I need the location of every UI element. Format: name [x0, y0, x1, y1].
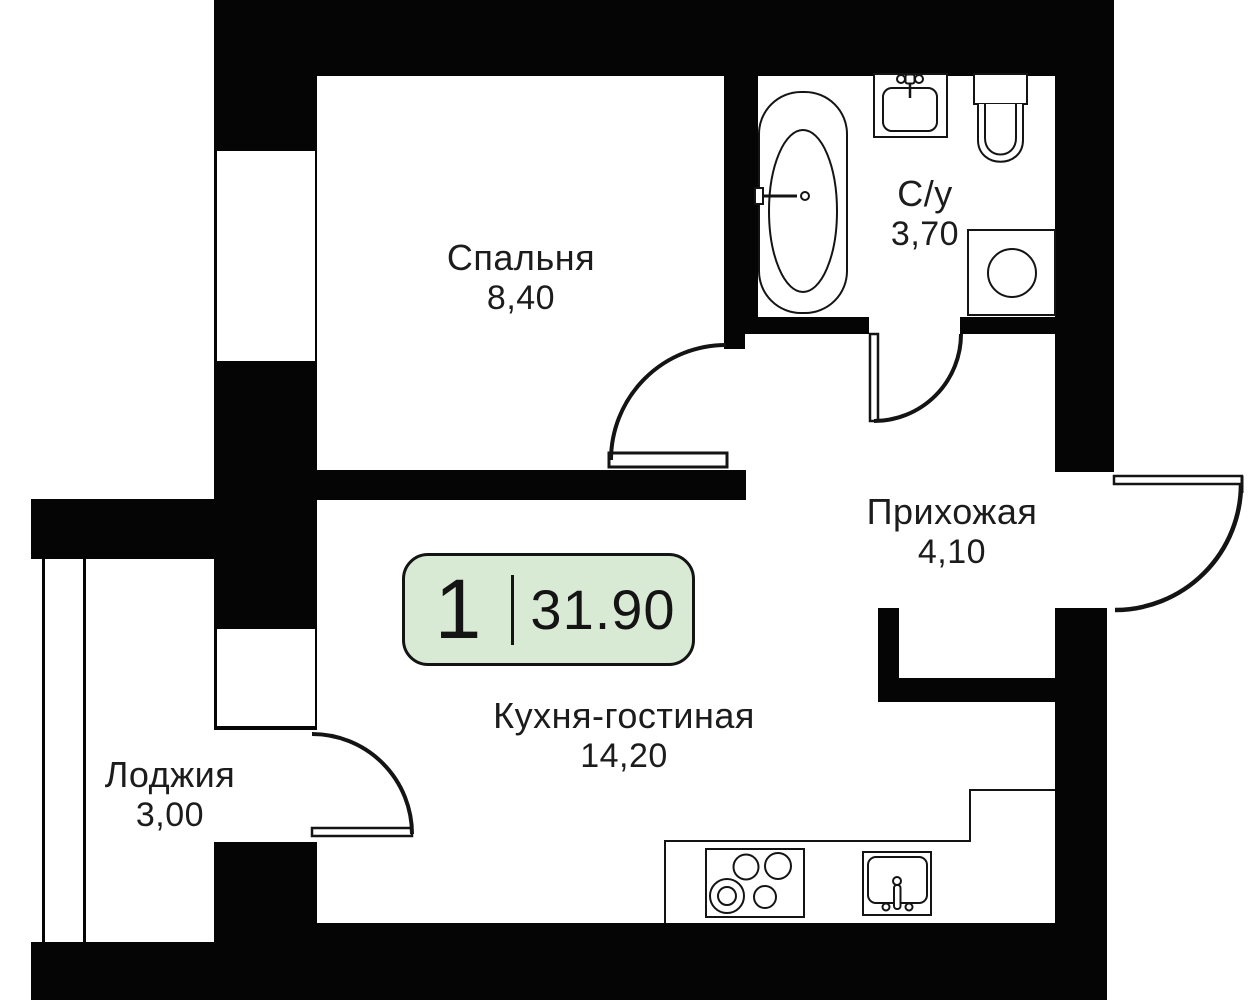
- bedroom-door: [609, 345, 727, 467]
- stove-burner-bottom-right: [754, 886, 776, 908]
- wall-right-lower: [1055, 608, 1107, 1000]
- bathroom-sink-knob-left: [897, 75, 905, 83]
- loggia-glazing-inner-line: [83, 559, 86, 942]
- bathtub-drain: [801, 192, 809, 200]
- loggia-name: Лоджия: [105, 754, 236, 795]
- bathtub-basin: [769, 130, 837, 292]
- entrance-door: [1114, 476, 1242, 610]
- unit-badge: 1 31.90: [402, 553, 695, 666]
- kitchen-sink-faucet-stem: [894, 885, 901, 909]
- washing-machine-drum: [988, 249, 1036, 297]
- kitchen-sink: [863, 852, 931, 915]
- wall-bedroom-door-jamb-bottom: [722, 470, 746, 500]
- wall-closet-bar: [878, 678, 1055, 702]
- wall-right-upper: [1055, 0, 1114, 472]
- wall-stub-below-balcony-door: [214, 842, 317, 923]
- wall-left-column: [214, 0, 317, 730]
- bedroom-door-swing-arc: [611, 345, 726, 460]
- entrance-door-swing-arc: [1115, 484, 1241, 610]
- bathroom-sink-mixer: [906, 75, 915, 84]
- kitchen-living-name: Кухня-гостиная: [493, 695, 755, 736]
- washing-machine: [968, 230, 1055, 315]
- kitchen-living-area: 14,20: [493, 736, 755, 777]
- bathroom-area: 3,70: [891, 214, 959, 255]
- bedroom-door-leaf: [609, 453, 727, 467]
- unit-rooms-count: 1: [405, 561, 511, 658]
- stove: [706, 849, 804, 917]
- toilet-tank: [974, 74, 1027, 104]
- stove-burner-top-left: [734, 855, 759, 880]
- kitchen-sink-knob-right: [906, 904, 913, 911]
- loggia-area: 3,00: [105, 795, 236, 836]
- balcony-door: [312, 734, 412, 836]
- wall-bottom: [214, 923, 1107, 1000]
- bathroom-door-swing-arc: [874, 334, 961, 421]
- bathroom-sink-knob-right: [915, 75, 923, 83]
- bathroom-sink: [874, 74, 947, 137]
- kitchen-living-label: Кухня-гостиная 14,20: [493, 695, 755, 777]
- balcony-door-swing-arc: [312, 734, 412, 834]
- bathroom-label: С/у 3,70: [891, 173, 959, 255]
- wall-top: [214, 0, 1114, 76]
- bathroom-door-leaf: [870, 334, 878, 421]
- unit-total-area: 31.90: [514, 577, 692, 642]
- bedroom-name: Спальня: [447, 237, 595, 278]
- hallway-label: Прихожая 4,10: [867, 491, 1038, 573]
- wall-bedroom-door-jamb-top: [724, 334, 745, 349]
- bedroom-window: [217, 151, 315, 361]
- bathroom-name: С/у: [891, 173, 959, 214]
- bathtub: [755, 92, 847, 313]
- wall-bedroom-kitchen: [317, 470, 722, 500]
- toilet: [974, 74, 1027, 162]
- stove-burner-top-right: [765, 853, 791, 879]
- hallway-area: 4,10: [867, 532, 1038, 573]
- wall-loggia-top: [31, 499, 215, 559]
- bedroom-area: 8,40: [447, 278, 595, 319]
- wall-bathroom-bottom-left: [724, 317, 869, 334]
- hallway-name: Прихожая: [867, 491, 1038, 532]
- loggia-label: Лоджия 3,00: [105, 754, 236, 836]
- wall-bathroom-bottom-right: [960, 317, 1055, 334]
- bathtub-faucet-base: [755, 188, 763, 204]
- kitchen-sink-knob-left: [883, 904, 890, 911]
- kitchen-sink-faucet-head: [893, 877, 901, 885]
- wall-shaft-window: [217, 629, 315, 726]
- wall-loggia-bottom: [31, 942, 215, 1000]
- entrance-door-leaf: [1114, 476, 1242, 484]
- stove-burner-bottom-left-inner: [718, 887, 736, 905]
- wall-bedroom-bathroom-divider: [724, 76, 758, 334]
- bathroom-door: [870, 334, 961, 421]
- kitchen-fixtures: [665, 790, 1055, 923]
- bedroom-label: Спальня 8,40: [447, 237, 595, 319]
- loggia-glazing-outer-line: [42, 559, 45, 942]
- floor-plan: Спальня 8,40 С/у 3,70 Прихожая 4,10 Кухн…: [0, 0, 1254, 1000]
- balcony-door-leaf: [312, 828, 412, 836]
- floor-plan-drawing: [0, 0, 1254, 1000]
